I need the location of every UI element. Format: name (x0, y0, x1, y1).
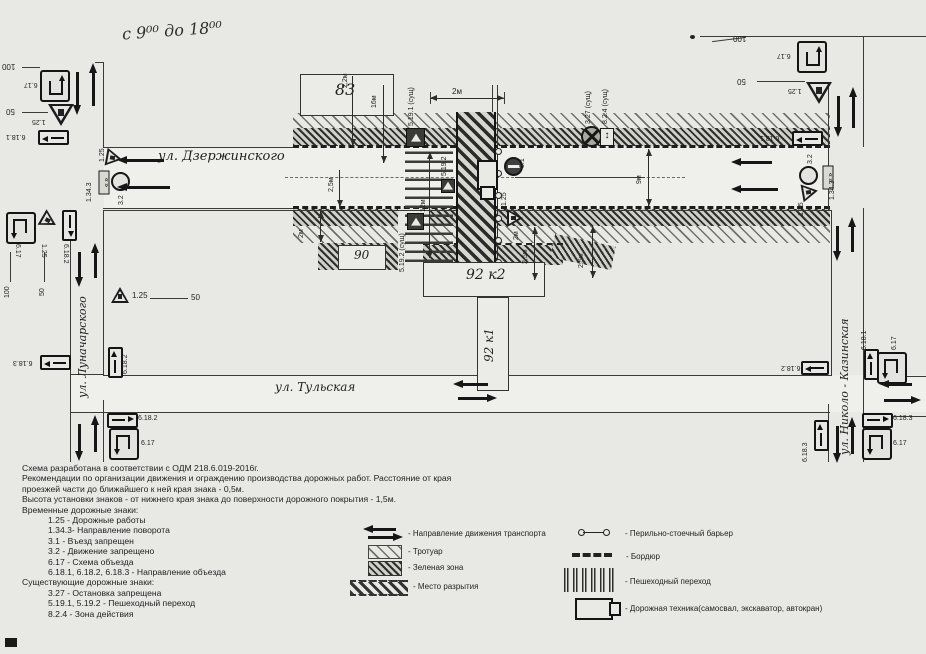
dim-2-2m-label: 2,2м (341, 73, 350, 88)
legend-machinery-label: - Дорожная техника(самосвал, экскаватор,… (625, 604, 822, 613)
traffic-arrow-down (78, 252, 81, 278)
traffic-arrow-left (740, 188, 778, 191)
dim-2m-bldg92-label: 2м (512, 231, 521, 240)
traffic-arrow-down (837, 96, 840, 128)
legend-crosswalk-icon (562, 568, 614, 592)
traffic-arrow-left (126, 159, 164, 162)
sign-6-17-label: 6.17 (890, 336, 899, 350)
sidewalk-north-2 (492, 113, 830, 128)
sign-6-18-3-detour-direction (814, 420, 829, 451)
street-tulskaya-label: ул. Тульская (275, 383, 355, 392)
sign-6-17-label: 6.17 (893, 439, 907, 448)
dim-ext (430, 92, 431, 104)
legend-machinery-icon (575, 598, 613, 620)
green-zone-north-1 (293, 128, 456, 146)
dim-2m-bldg92 (534, 227, 535, 280)
tulskaya-bottom (103, 412, 830, 413)
sign-5-19-2-crosswalk (441, 179, 455, 193)
note-line: проезжей части до ближайшего к ней края … (22, 484, 492, 494)
sign-6-17-detour-scheme (40, 70, 70, 102)
legend-crosswalk-label: - Пешеходный переход (625, 577, 711, 586)
legend-direction-arrow-icon (368, 536, 394, 539)
street-nikolo-kazinskaya-label: ул. Николо - Казинская (840, 318, 849, 455)
sign-6-18-2-detour-direction (107, 413, 138, 428)
traffic-arrow-left (126, 186, 170, 189)
sign-1-25-label: 1.25 (500, 192, 509, 206)
road-machinery-cab-icon (480, 186, 495, 200)
sign-6-18-2-label: 6.18.2 (121, 355, 130, 374)
scan-dot (690, 35, 695, 39)
dim-2-5m-left (339, 170, 340, 207)
legend-curb-label: - Бордюр (626, 552, 660, 561)
dz-top-edge (103, 147, 295, 148)
legend-direction-arrow-icon (372, 528, 396, 531)
traffic-arrow-up (851, 426, 854, 454)
sign-6-18-1-detour-direction (792, 131, 823, 146)
distance-50-inner: 50 (191, 293, 200, 302)
street-dzerzhinskogo-label: ул. Дзержинского (158, 152, 285, 161)
traffic-arrow-left (462, 383, 488, 386)
sign-6-17-label: 6.17 (777, 51, 791, 60)
distance-100-top-left: 100 (2, 62, 15, 71)
sign-1-34-3-label: 1.34.3 (828, 181, 837, 200)
sign-1-25-label: 1.25 (132, 291, 148, 300)
sign-1-25-roadworks (806, 82, 832, 104)
distance-100-left: 100 (3, 286, 12, 298)
legend-sidewalk-icon (368, 545, 402, 559)
sign-8-2-4-zone (600, 128, 614, 146)
nikolo-edge-right (863, 37, 864, 147)
lunacharskogo-edge-top (103, 62, 104, 147)
sign-6-18-2-detour-direction (62, 210, 77, 241)
dz-top-curb-2 (492, 145, 830, 148)
barrier-post-icon (495, 148, 502, 155)
distance-100-top-right: 100 (733, 34, 746, 43)
dim-12m (429, 152, 430, 258)
leader-line (10, 252, 11, 282)
sign-1-34-3-turn-board (99, 171, 110, 195)
scan-corner-mark (5, 638, 17, 647)
traffic-arrow-up (94, 424, 97, 452)
sign-6-18-3-label: 6.18.3 (893, 414, 912, 423)
barrier-post-icon (495, 215, 502, 222)
sign-3-27-no-stopping (581, 126, 602, 147)
notes-block: Схема разработана в соответствии с ОДМ 2… (22, 463, 492, 619)
sign-6-17-detour-scheme (6, 212, 36, 244)
traffic-arrow-down (78, 424, 81, 452)
sign-3-2-label: 3.2 (806, 154, 815, 164)
sign-3-2-label: 3.2 (117, 195, 126, 205)
note-line: 1.25 - Дорожные работы (22, 515, 492, 525)
dim-12m-label: 12м (419, 199, 428, 212)
traffic-arrow-right (884, 399, 912, 402)
sign-6-18-3-detour-direction (40, 355, 71, 370)
note-line: Рекомендации по организации движения и о… (22, 473, 492, 483)
sign-1-25-roadworks (801, 182, 820, 203)
legend-green-zone-label: - Зеленая зона (408, 563, 463, 572)
note-line: 5.19.1, 5.19.2 - Пешеходный переход (22, 598, 492, 608)
sign-1-25-label: 1.25 (32, 117, 46, 126)
legend-green-zone-icon (368, 561, 402, 576)
traffic-arrow-up (94, 252, 97, 278)
sign-1-25-label: 1.25 (797, 202, 806, 216)
legend-sidewalk-label: - Тротуар (408, 547, 443, 556)
traffic-arrow-up (852, 96, 855, 128)
note-line: Схема разработана в соответствии с ОДМ 2… (22, 463, 492, 473)
sign-6-17-detour-scheme (797, 41, 827, 73)
traffic-arrow-down (836, 226, 839, 252)
traffic-arrow-right (458, 397, 488, 400)
distance-50-top-left: 50 (6, 107, 15, 116)
sign-3-1-label: 3.1 (518, 158, 527, 168)
sign-6-18-2-detour-direction (801, 361, 829, 375)
traffic-arrow-down (836, 426, 839, 454)
barrier-post-icon (495, 237, 502, 244)
traffic-arrow-down (76, 72, 79, 106)
dim-ext (504, 92, 505, 104)
dim-2m-top (430, 98, 504, 99)
leader-line (22, 112, 48, 113)
sign-5-19-1-crosswalk (406, 128, 425, 147)
legend-excavation-label: - Место разрытия (413, 582, 478, 591)
traffic-arrow-left (888, 383, 912, 386)
building-92k1-label: 92 к1 (485, 328, 494, 362)
sign-6-18-1-label: 6.18.1 (860, 331, 869, 350)
building-92k2-label: 92 к2 (466, 271, 506, 280)
barrier-post-icon (603, 529, 610, 536)
sign-1-25-roadworks (38, 209, 61, 233)
dim-9m (648, 149, 649, 206)
sign-5-19-2-crosswalk (407, 213, 424, 230)
legend-traffic-direction-label: - Направление движения транспорта (408, 529, 546, 538)
leader-line (150, 298, 188, 299)
traffic-arrow-up (92, 72, 95, 106)
building-90: 90 (338, 245, 386, 270)
sign-1-25-roadworks (48, 104, 74, 126)
sign-6-17-detour-scheme (109, 428, 139, 460)
leader-line (757, 81, 805, 82)
legend-post-barrier-icon (578, 529, 608, 536)
distance-50-left: 50 (38, 288, 47, 296)
leader-line (44, 252, 45, 282)
legend-excavation-icon (350, 580, 408, 596)
traffic-arrow-up (851, 226, 854, 252)
legend-post-barrier-label: - Перильно-стоечный барьер (625, 529, 733, 538)
dim-2-2m (352, 76, 353, 146)
sign-6-17-detour-scheme (862, 428, 892, 460)
dz-bottom-curb-2 (492, 206, 830, 209)
dz-bottom-edge (103, 208, 295, 209)
dim-2-5m-left-label: 2,5м (327, 177, 336, 192)
traffic-arrow-left (740, 161, 772, 164)
note-line: Временные дорожные знаки: (22, 505, 492, 515)
lunacharskogo-edge-right-lower (103, 400, 104, 462)
building-92k2: 92 к2 (423, 262, 545, 297)
legend-curb-icon (572, 553, 612, 557)
lunacharskogo-edge-left (70, 212, 71, 462)
dim-2m-top-label: 2м (452, 87, 462, 96)
handwritten-hours: с 9⁰⁰ до 18⁰⁰ (122, 23, 223, 39)
dim-2m-bldg90 (320, 211, 321, 242)
sign-6-17-label: 6.17 (141, 439, 155, 448)
dim-16m (383, 85, 384, 163)
sign-6-18-3-label: 6.18.3 (801, 443, 810, 462)
sign-6-18-3-detour-direction (862, 413, 893, 428)
tulskaya-bottom-west (70, 412, 103, 413)
sign-5-19-1-label: 5.19.1 (сущ) (407, 87, 416, 126)
sign-1-25-roadworks (507, 209, 523, 227)
dim-16m-label: 16м (370, 95, 379, 108)
sign-5-19-2-label: 5.19.2 (440, 157, 449, 176)
street-lunacharskogo-label: ул. Луначарского (78, 296, 87, 398)
dim-2-5m-right-label: 2,5м (577, 253, 586, 268)
sign-6-18-2-label: 6.18.2 (138, 414, 157, 423)
dim-2m-bldg90-label: 2м (297, 229, 306, 238)
distance-50-top-right: 50 (737, 77, 746, 86)
road-works-scheme-sheet: с 9⁰⁰ до 18⁰⁰ (0, 0, 926, 654)
building-90-label: 90 (354, 251, 369, 260)
barrier-bar-icon (583, 532, 605, 534)
leader-line (22, 67, 40, 68)
sign-1-25-label: 1.25 (788, 86, 802, 95)
sign-1-34-3-label: 1.34.3 (85, 183, 94, 202)
legend-machinery-cab-icon (609, 602, 621, 616)
dim-2-5m-right (592, 226, 593, 278)
sign-6-17-label: 6.17 (24, 80, 38, 89)
sign-1-25-roadworks (111, 287, 129, 303)
dim-9m-leader (515, 177, 645, 178)
dim-2-5m-bldg92-label: 2,5м (521, 249, 530, 264)
sign-6-18-2-label: 6.18.2 (781, 363, 800, 372)
sign-5-19-2-existing-label: 5.19.2 (сущ) (398, 233, 407, 272)
note-line: Высота установки знаков - от нижнего кра… (22, 494, 492, 504)
sign-6-18-1-detour-direction (38, 130, 69, 145)
sign-6-18-1-label: 6.18.1 (6, 132, 25, 141)
dim-9m-label: 9м (635, 175, 644, 184)
sign-8-2-4-label: 8.2.4 (сущ) (601, 89, 610, 124)
note-line: 8.2.4 - Зона действия (22, 609, 492, 619)
sign-6-18-3-label: 6.18.3 (13, 358, 32, 367)
sign-6-18-2-label: 6.18.2 (61, 244, 70, 263)
sign-3-27-label: 3.27 (сущ) (584, 91, 593, 124)
sign-6-17-label: 6.17 (13, 244, 22, 258)
sign-6-18-1-label: 6.18.1 (760, 133, 779, 142)
